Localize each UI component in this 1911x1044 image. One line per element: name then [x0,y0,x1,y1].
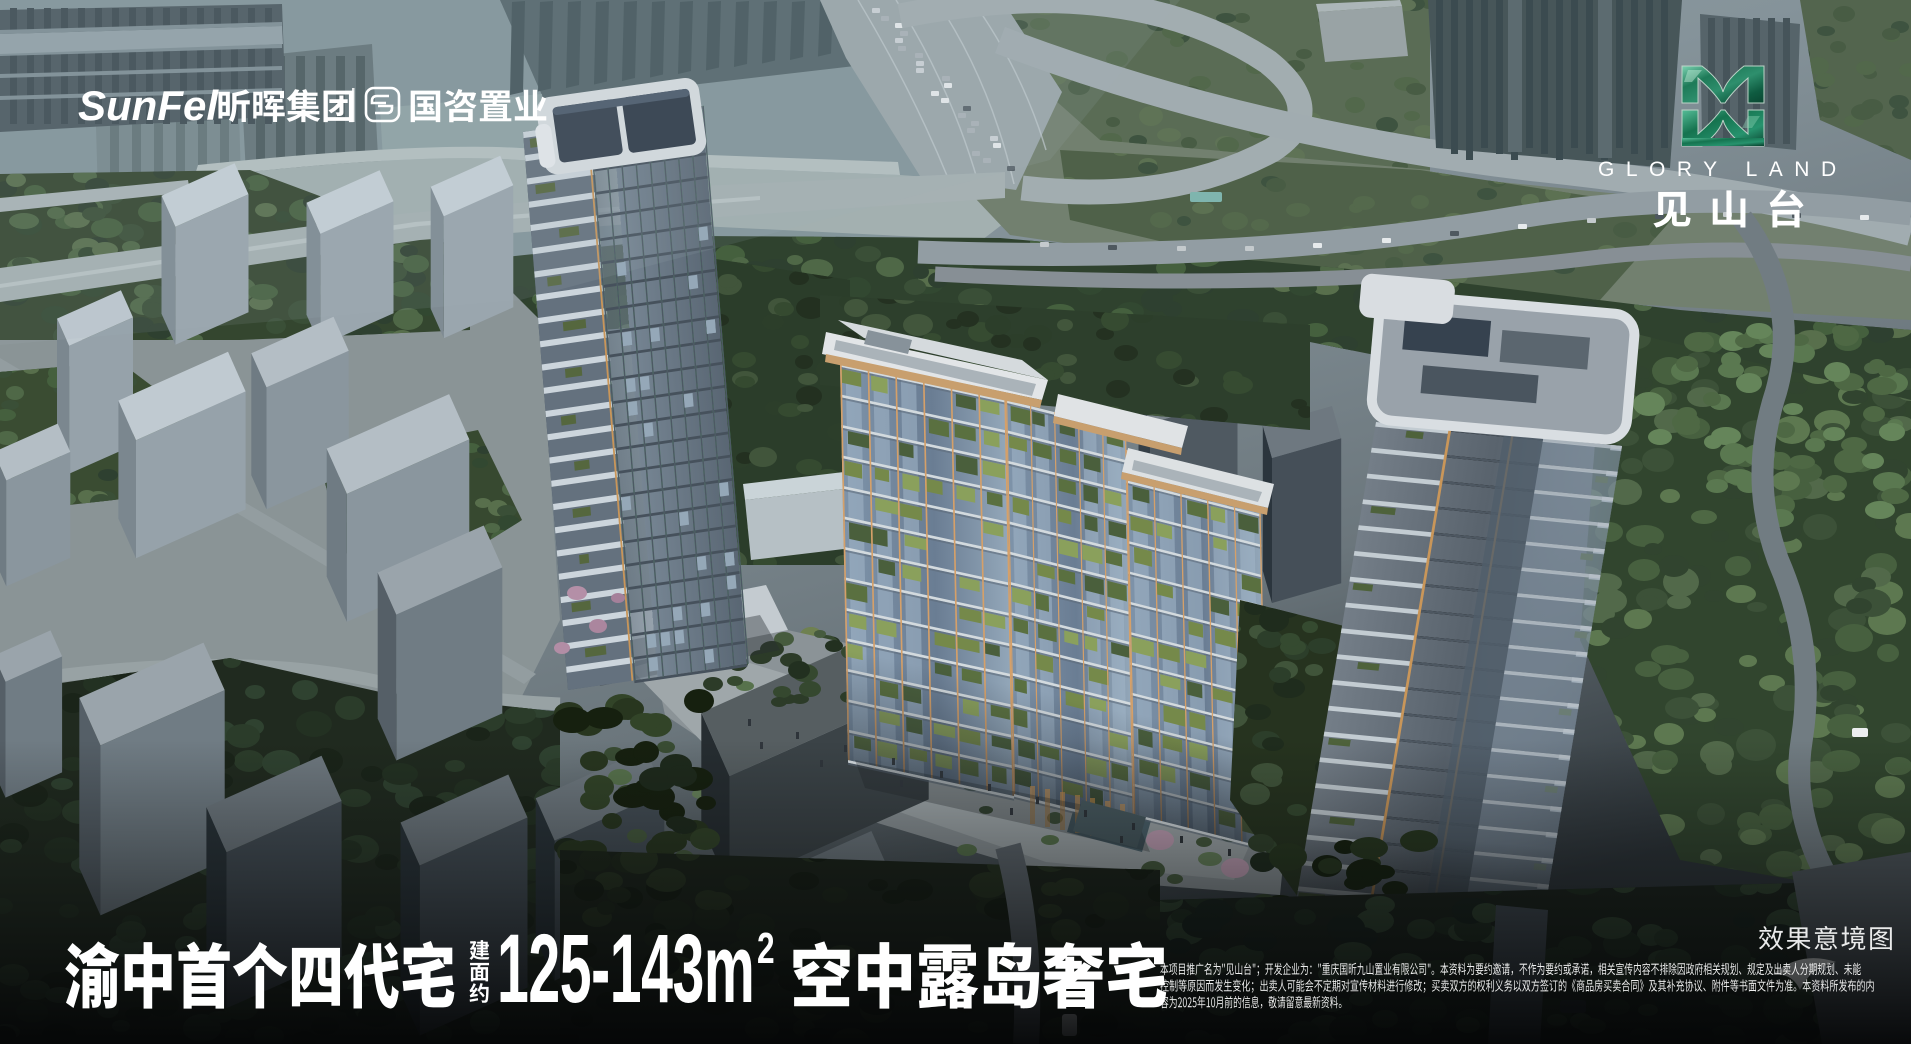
svg-text:GLORY LAND: GLORY LAND [1598,158,1848,181]
svg-text:SunFel: SunFel [78,82,219,129]
svg-text:125-143m: 125-143m [497,914,755,1022]
svg-text:2: 2 [757,924,775,973]
